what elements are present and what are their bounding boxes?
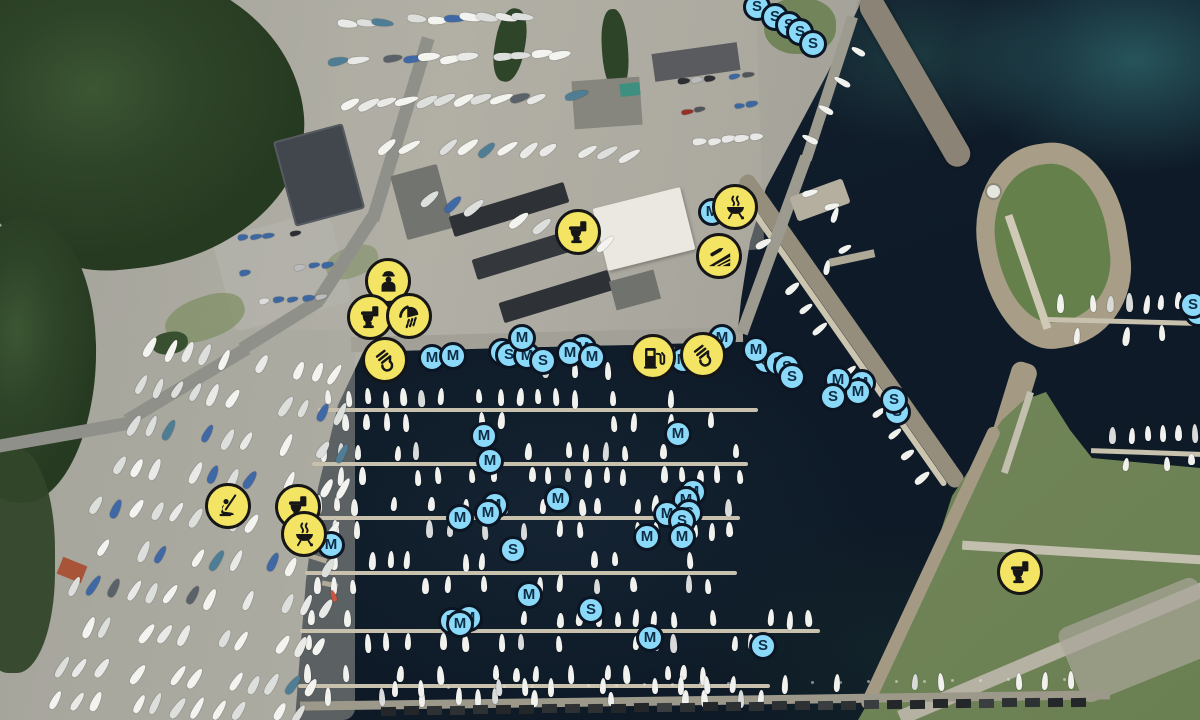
mooring-letter: M	[478, 428, 491, 443]
marker-crane[interactable]	[680, 332, 726, 378]
marker-playground[interactable]	[205, 483, 251, 529]
marker-mooring-s[interactable]: S	[1179, 291, 1200, 319]
harbourmaster-icon	[375, 268, 402, 295]
mooring-letter: M	[482, 505, 495, 520]
mooring-letter: M	[523, 587, 536, 602]
mooring-letter: M	[750, 342, 763, 357]
harbour-map[interactable]: SSSSSMMMSSMMSMMMMMSMSSSMMMSSSSSMMMMMMMMM…	[0, 0, 1200, 720]
mooring-letter: M	[676, 529, 689, 544]
mooring-letter: M	[852, 384, 865, 399]
bbq-icon	[291, 521, 318, 548]
mooring-letter: M	[641, 529, 654, 544]
mooring-letter: S	[538, 353, 548, 368]
marker-mooring-s[interactable]: S	[499, 536, 527, 564]
mooring-letter: M	[426, 350, 439, 365]
mooring-letter: M	[586, 349, 599, 364]
toilet-icon	[565, 219, 592, 246]
marker-mooring-m[interactable]: M	[636, 624, 664, 652]
marker-slipway[interactable]	[696, 233, 742, 279]
mooring-letter: S	[508, 542, 518, 557]
marker-toilet[interactable]	[555, 209, 601, 255]
bbq-icon	[722, 194, 749, 221]
marker-toilet[interactable]	[997, 549, 1043, 595]
marker-mooring-m[interactable]: M	[470, 422, 498, 450]
toilet-icon	[1007, 559, 1034, 586]
mooring-letter: M	[454, 616, 467, 631]
mooring-letter: M	[447, 348, 460, 363]
playground-icon	[215, 493, 242, 520]
marker-mooring-m[interactable]: M	[476, 447, 504, 475]
mooring-letter: S	[758, 638, 768, 653]
marker-mooring-m[interactable]: M	[633, 523, 661, 551]
mooring-letter: S	[787, 369, 797, 384]
mooring-letter: M	[552, 491, 565, 506]
marker-mooring-m[interactable]: M	[474, 499, 502, 527]
mooring-letter: M	[325, 537, 338, 552]
marker-mooring-s[interactable]: S	[880, 386, 908, 414]
marker-mooring-m[interactable]: M	[439, 342, 467, 370]
mooring-letter: S	[752, 0, 762, 14]
marker-crane[interactable]	[362, 337, 408, 383]
marker-mooring-m[interactable]: M	[578, 343, 606, 371]
map-markers-layer: SSSSSMMMSSMMSMMMMMSMSSSMMMSSSSSMMMMMMMMM…	[0, 0, 1200, 720]
mooring-letter: S	[828, 389, 838, 404]
shower-icon	[396, 303, 423, 330]
mooring-letter: M	[516, 330, 529, 345]
mooring-letter: S	[808, 36, 818, 51]
marker-bbq[interactable]	[281, 511, 327, 557]
marker-mooring-s[interactable]: S	[577, 596, 605, 624]
crane-icon	[372, 347, 399, 374]
marker-mooring-m[interactable]: M	[515, 581, 543, 609]
marker-mooring-s[interactable]: S	[749, 632, 777, 660]
mooring-letter: M	[644, 630, 657, 645]
marker-mooring-m[interactable]: M	[544, 485, 572, 513]
marker-mooring-s[interactable]: S	[819, 383, 847, 411]
toilet-icon	[357, 304, 384, 331]
marker-mooring-m[interactable]: M	[664, 420, 692, 448]
marker-mooring-m[interactable]: M	[446, 504, 474, 532]
marker-mooring-s[interactable]: S	[529, 347, 557, 375]
mooring-letter: M	[672, 426, 685, 441]
mooring-letter: S	[889, 392, 899, 407]
mooring-letter: S	[586, 602, 596, 617]
crane-icon	[690, 342, 717, 369]
fuel-icon	[640, 344, 667, 371]
marker-mooring-s[interactable]: S	[799, 30, 827, 58]
marker-bbq[interactable]	[712, 184, 758, 230]
mooring-letter: S	[1188, 297, 1198, 312]
marker-shower[interactable]	[386, 293, 432, 339]
mooring-letter: M	[454, 510, 467, 525]
marker-mooring-m[interactable]: M	[446, 610, 474, 638]
marker-mooring-s[interactable]: S	[778, 363, 806, 391]
marker-mooring-m[interactable]: M	[668, 523, 696, 551]
mooring-letter: M	[564, 345, 577, 360]
marker-mooring-m[interactable]: M	[508, 324, 536, 352]
marker-fuel[interactable]	[630, 334, 676, 380]
mooring-letter: M	[484, 453, 497, 468]
slipway-icon	[706, 243, 733, 270]
